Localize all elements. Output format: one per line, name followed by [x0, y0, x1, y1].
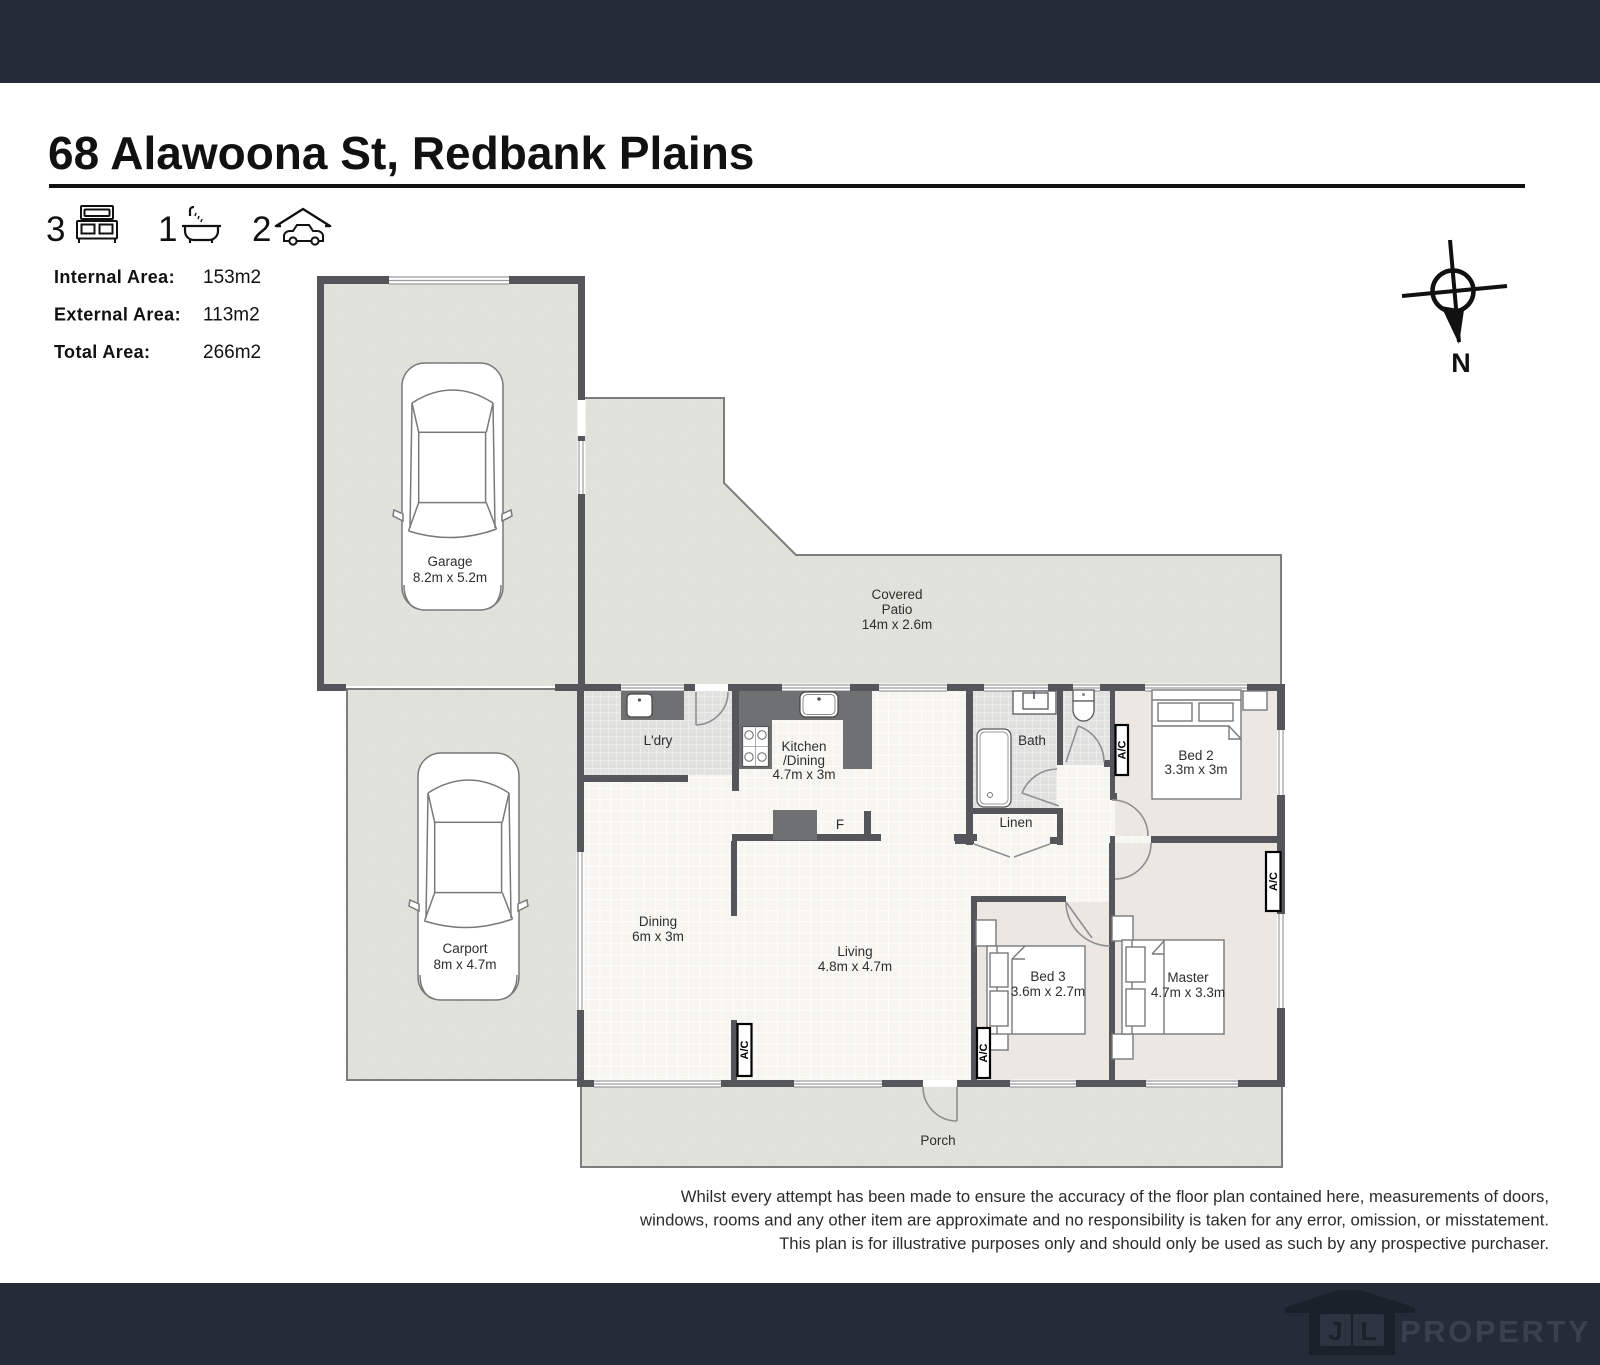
svg-text:F: F	[836, 817, 844, 832]
svg-text:N: N	[1451, 348, 1471, 378]
svg-text:Bed 3: Bed 3	[1030, 969, 1065, 984]
svg-text:4.7m x 3.3m: 4.7m x 3.3m	[1151, 985, 1225, 1000]
svg-text:266m2: 266m2	[203, 342, 261, 363]
svg-text:J: J	[1328, 1316, 1342, 1346]
svg-text:68 Alawoona St, Redbank Plains: 68 Alawoona St, Redbank Plains	[48, 127, 754, 179]
svg-text:113m2: 113m2	[203, 305, 260, 326]
svg-text:6m x 3m: 6m x 3m	[632, 929, 684, 944]
svg-text:windows, rooms and any other i: windows, rooms and any other item are ap…	[639, 1211, 1549, 1230]
svg-text:8.2m x 5.2m: 8.2m x 5.2m	[413, 570, 487, 585]
svg-text:Living: Living	[837, 944, 872, 959]
svg-text:2: 2	[252, 210, 271, 249]
svg-text:3.6m x 2.7m: 3.6m x 2.7m	[1011, 984, 1085, 999]
svg-text:Porch: Porch	[920, 1133, 955, 1148]
svg-text:A/C: A/C	[978, 1043, 990, 1062]
svg-text:Linen: Linen	[999, 815, 1032, 830]
svg-text:Total Area:: Total Area:	[54, 342, 150, 362]
svg-text:A/C: A/C	[1268, 872, 1280, 891]
svg-text:4.8m x 4.7m: 4.8m x 4.7m	[818, 959, 892, 974]
svg-text:L: L	[1361, 1316, 1377, 1346]
svg-text:3: 3	[46, 210, 65, 249]
svg-text:Master: Master	[1167, 970, 1209, 985]
svg-text:153m2: 153m2	[203, 267, 261, 288]
svg-text:This plan is for illustrative: This plan is for illustrative purposes o…	[779, 1234, 1549, 1253]
svg-text:Patio: Patio	[882, 602, 913, 617]
svg-text:A/C: A/C	[739, 1040, 751, 1059]
svg-text:External Area:: External Area:	[54, 305, 181, 325]
svg-text:Carport: Carport	[442, 941, 487, 956]
svg-text:Bed 2: Bed 2	[1178, 748, 1213, 763]
svg-text:4.7m x 3m: 4.7m x 3m	[772, 767, 835, 782]
svg-text:/Dining: /Dining	[783, 753, 825, 768]
svg-text:Bath: Bath	[1018, 733, 1046, 748]
svg-text:Internal Area:: Internal Area:	[54, 267, 175, 287]
svg-text:Kitchen: Kitchen	[781, 739, 826, 754]
svg-text:Dining: Dining	[639, 914, 677, 929]
svg-text:L'dry: L'dry	[644, 733, 673, 748]
svg-text:1: 1	[158, 210, 177, 249]
svg-text:3.3m x 3m: 3.3m x 3m	[1164, 762, 1227, 777]
svg-text:Whilst every attempt has been: Whilst every attempt has been made to en…	[681, 1187, 1549, 1206]
svg-text:8m x 4.7m: 8m x 4.7m	[433, 957, 496, 972]
svg-text:14m x 2.6m: 14m x 2.6m	[862, 617, 933, 632]
svg-text:Garage: Garage	[427, 554, 472, 569]
svg-text:Covered: Covered	[871, 587, 922, 602]
svg-text:PROPERTY: PROPERTY	[1400, 1314, 1591, 1349]
svg-text:A/C: A/C	[1117, 740, 1129, 759]
